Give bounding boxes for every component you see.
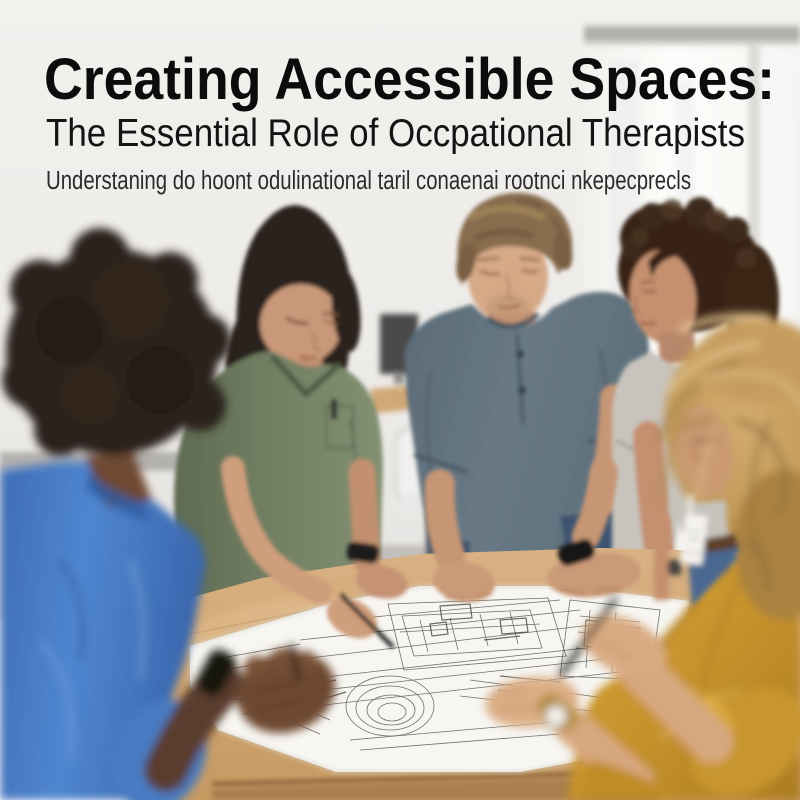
svg-text:The Essential Role of Occpatio: The Essential Role of Occpational Therap… [46,112,745,155]
svg-text:Understaning do hoont odulinat: Understaning do hoont odulinational tari… [46,167,691,195]
svg-text:Creating Accessible Spaces:: Creating Accessible Spaces: [44,47,775,112]
